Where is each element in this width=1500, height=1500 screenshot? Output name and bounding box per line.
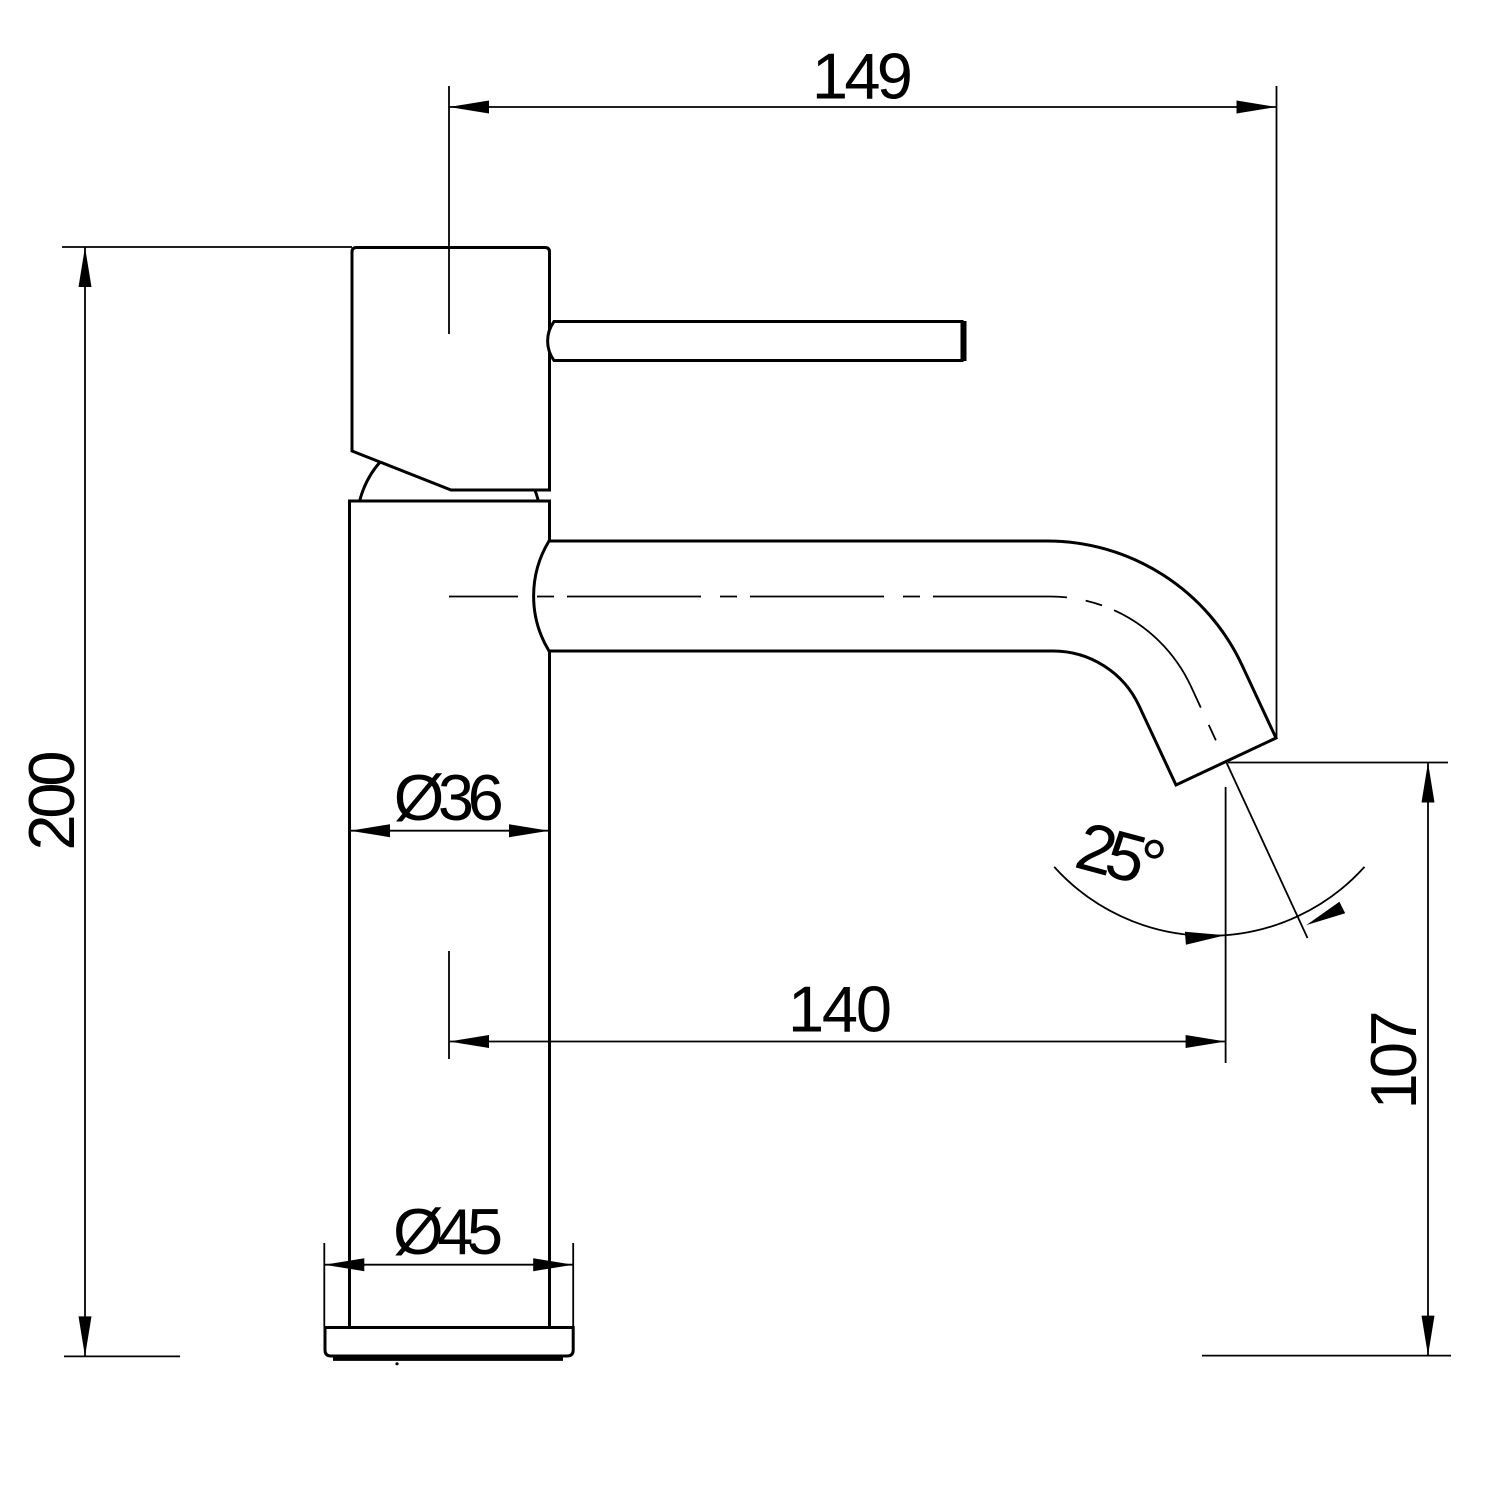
svg-text:140: 140: [788, 973, 892, 1046]
svg-text:Ø45: Ø45: [393, 1195, 503, 1268]
svg-text:Ø36: Ø36: [394, 761, 504, 834]
svg-text:107: 107: [1357, 1011, 1430, 1110]
svg-text:200: 200: [15, 751, 88, 851]
svg-text:149: 149: [812, 40, 913, 113]
